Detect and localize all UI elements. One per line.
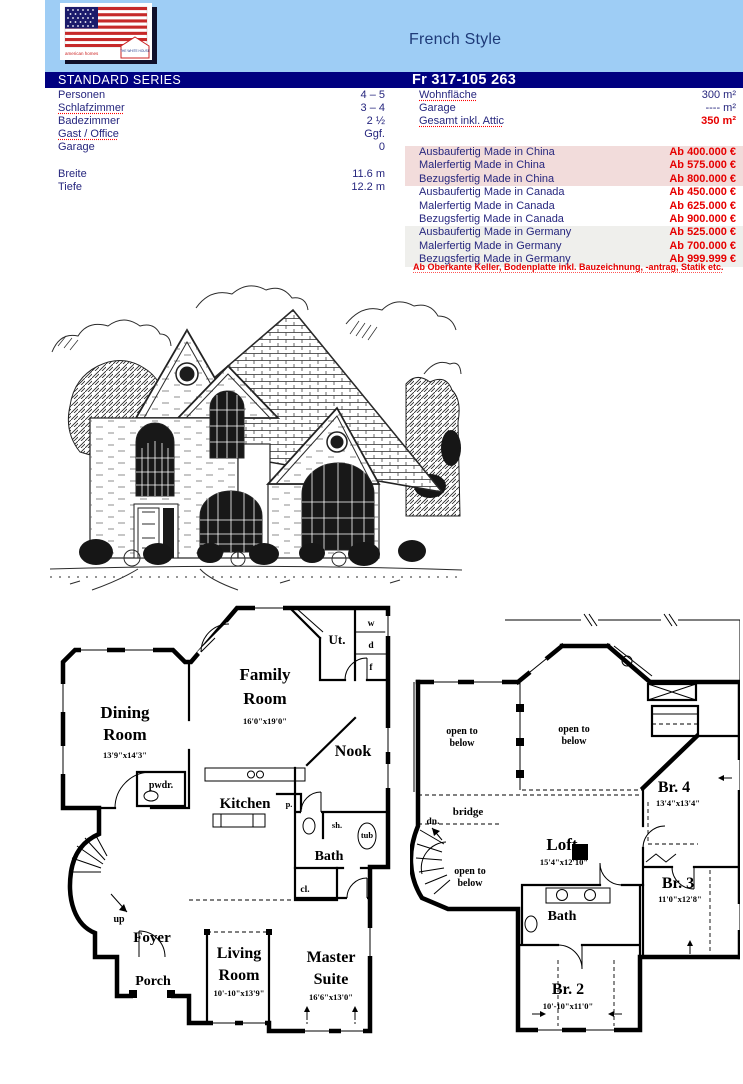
spec-row: Garage0 bbox=[58, 141, 385, 154]
area-row: Gesamt inkl. Attic350 m² bbox=[405, 115, 743, 128]
spec-row-spacer bbox=[58, 154, 385, 167]
plan2-roofline bbox=[505, 613, 740, 680]
catalog-page: { "colors": { "band_blue": "#9ecdf5", "b… bbox=[0, 0, 743, 1084]
room-living-dims: 10'-10"x13'9" bbox=[214, 988, 265, 998]
label-down: dn. bbox=[427, 817, 440, 827]
room-br3: Br. 3 bbox=[662, 875, 694, 892]
spec-row: Personen4 – 5 bbox=[58, 89, 385, 102]
price-row: Ausbaufertig Made in ChinaAb 400.000 € bbox=[405, 146, 743, 159]
label-pantry: p. bbox=[286, 799, 293, 809]
tree-right bbox=[406, 377, 461, 516]
room-powder: pwdr. bbox=[149, 780, 174, 791]
label-dryer: d bbox=[368, 641, 374, 651]
room-br3-dims: 11'0"x12'8" bbox=[658, 894, 701, 904]
price-row: Malerfertig Made in CanadaAb 625.000 € bbox=[405, 200, 743, 213]
svg-text:below: below bbox=[450, 738, 476, 749]
us-flag-icon: american homes THE WHITE HOUSE bbox=[60, 3, 152, 60]
room-loft: Loft bbox=[546, 835, 578, 854]
room-loft-dims: 15'4"x12'10" bbox=[540, 857, 588, 867]
label-open-to-below-3: open to bbox=[454, 866, 485, 877]
house-rendering bbox=[50, 280, 462, 592]
price-row: Bezugsfertig Made in ChinaAb 800.000 € bbox=[405, 173, 743, 186]
room-master: Master bbox=[307, 949, 356, 966]
svg-text:below: below bbox=[562, 736, 588, 747]
spec-row: Tiefe12.2 m bbox=[58, 181, 385, 194]
model-number: Fr 317-105 263 bbox=[412, 72, 516, 88]
room-porch: Porch bbox=[135, 974, 171, 989]
label-bridge: bridge bbox=[453, 806, 484, 818]
room-ut: Ut. bbox=[329, 632, 346, 647]
series-bar: STANDARD SERIES Fr 317-105 263 bbox=[45, 72, 743, 88]
room-family-dims: 16'0"x19'0" bbox=[243, 716, 287, 726]
flag-canton bbox=[65, 7, 98, 29]
room-nook: Nook bbox=[335, 743, 372, 760]
room-dining-dims: 13'9"x14'3" bbox=[103, 750, 147, 760]
room-bath1: Bath bbox=[315, 849, 344, 864]
spec-row: Badezimmer2 ½ bbox=[58, 115, 385, 128]
floorplan-first-floor: Dining Room 13'9"x14'3" Family Room 16'0… bbox=[55, 588, 400, 1048]
spec-row: Breite11.6 m bbox=[58, 168, 385, 181]
label-open-to-below-2: open to bbox=[558, 724, 589, 735]
series-name: STANDARD SERIES bbox=[58, 73, 181, 87]
label-up: up bbox=[113, 914, 125, 925]
label-washer: w bbox=[368, 619, 375, 629]
price-row: Ausbaufertig Made in CanadaAb 450.000 € bbox=[405, 186, 743, 199]
room-master-dims: 16'6"x13'0" bbox=[309, 992, 353, 1002]
room-br2-dims: 10'-10"x11'0" bbox=[543, 1001, 594, 1011]
spec-table: Personen4 – 5 Schlafzimmer3 – 4 Badezimm… bbox=[58, 89, 385, 194]
price-row: Malerfertig Made in GermanyAb 700.000 € bbox=[405, 240, 743, 253]
svg-text:Room: Room bbox=[243, 689, 286, 708]
american-homes-logo: american homes THE WHITE HOUSE bbox=[60, 3, 152, 60]
plan2-stairs bbox=[416, 828, 450, 894]
price-table: Ausbaufertig Made in ChinaAb 400.000 € M… bbox=[405, 146, 743, 267]
logo-brand-text: american homes bbox=[65, 51, 99, 56]
area-row: Garage---- m² bbox=[405, 102, 743, 115]
price-footnote: Ab Oberkante Keller, Bodenplatte inkl. B… bbox=[413, 262, 743, 272]
label-freezer: f bbox=[369, 663, 373, 673]
label-shower: sh. bbox=[332, 820, 342, 830]
svg-text:Room: Room bbox=[103, 725, 146, 744]
area-table: Wohnfläche300 m² Garage---- m² Gesamt in… bbox=[405, 89, 743, 128]
page-title: French Style bbox=[409, 31, 501, 49]
spec-row: Gast / OfficeGgf. bbox=[58, 128, 385, 141]
svg-text:Room: Room bbox=[219, 967, 261, 984]
room-living: Living bbox=[217, 945, 261, 962]
price-row: Malerfertig Made in ChinaAb 575.000 € bbox=[405, 159, 743, 172]
spec-row: Schlafzimmer3 – 4 bbox=[58, 102, 385, 115]
svg-text:below: below bbox=[458, 878, 484, 889]
label-closet: cl. bbox=[300, 885, 309, 895]
price-row: Ausbaufertig Made in GermanyAb 525.000 € bbox=[405, 226, 743, 239]
label-tub: tub bbox=[361, 830, 374, 840]
room-kitchen: Kitchen bbox=[220, 796, 271, 812]
label-open-to-below-1: open to bbox=[446, 726, 477, 737]
room-foyer: Foyer bbox=[133, 930, 171, 946]
room-dining: Dining bbox=[100, 703, 150, 722]
price-row: Bezugsfertig Made in CanadaAb 900.000 € bbox=[405, 213, 743, 226]
room-br4: Br. 4 bbox=[658, 779, 690, 796]
floorplan-second-floor: open to below open to below Br. 4 13'4"x… bbox=[410, 612, 740, 1052]
ground bbox=[50, 566, 462, 590]
area-row: Wohnfläche300 m² bbox=[405, 89, 743, 102]
svg-text:Suite: Suite bbox=[314, 971, 349, 988]
room-br4-dims: 13'4"x13'4" bbox=[656, 798, 700, 808]
room-family: Family bbox=[240, 665, 291, 684]
plan1-labels: Dining Room 13'9"x14'3" Family Room 16'0… bbox=[100, 619, 374, 1002]
plan1-stairs bbox=[71, 834, 127, 912]
room-bath2: Bath bbox=[548, 909, 577, 924]
svg-text:THE WHITE HOUSE: THE WHITE HOUSE bbox=[120, 49, 150, 53]
room-br2: Br. 2 bbox=[552, 981, 584, 998]
